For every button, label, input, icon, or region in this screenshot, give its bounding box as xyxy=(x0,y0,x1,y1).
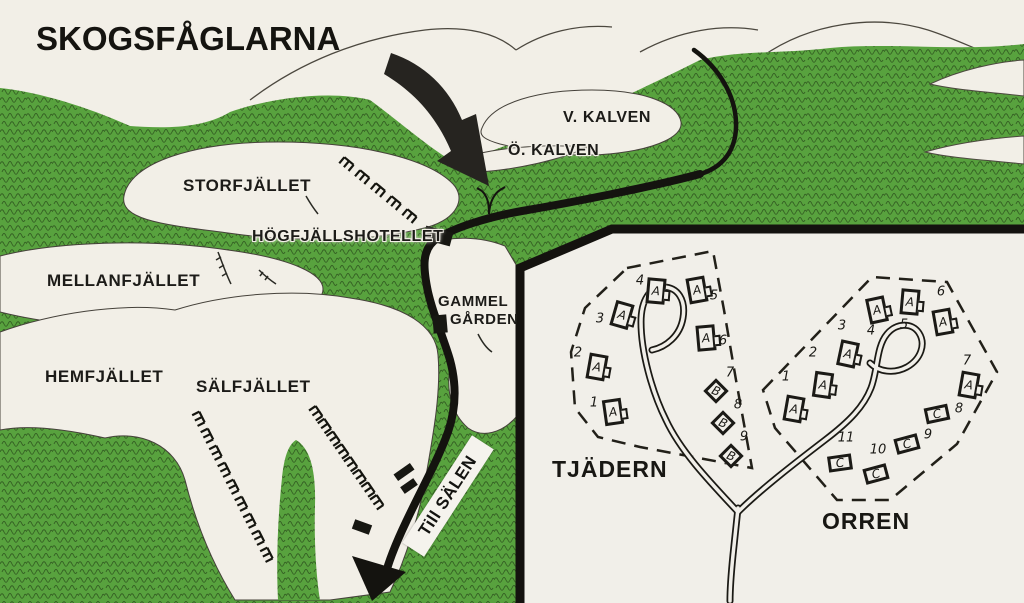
cabin-type-letter: B xyxy=(724,448,737,464)
cabin-number: 8 xyxy=(955,402,963,417)
cabin-number: 9 xyxy=(924,428,932,443)
cabin-type-letter: C xyxy=(870,466,882,482)
cabin-orren-6: A xyxy=(931,308,954,337)
cabin-number: 7 xyxy=(963,354,971,369)
cabin-type-letter: B xyxy=(716,415,729,431)
cabin-number: 3 xyxy=(838,319,846,334)
cabin-type-letter: A xyxy=(872,302,883,317)
cabin-tjädern-8: B xyxy=(710,410,735,435)
cabin-type-letter: A xyxy=(692,282,703,297)
cabin-type-letter: C xyxy=(901,436,913,452)
cabin-orren-9: C xyxy=(893,433,920,455)
cabin-tjädern-7: B xyxy=(703,378,728,403)
cabin-number: 2 xyxy=(809,346,817,361)
cabin-notch xyxy=(918,301,925,312)
cabin-notch xyxy=(801,409,809,421)
cabin-orren-8: C xyxy=(924,404,951,425)
cabin-notch xyxy=(830,384,837,396)
cabin-orren-7: A xyxy=(957,371,980,400)
cabin-notch xyxy=(885,305,893,317)
cabin-number: 10 xyxy=(870,443,887,458)
cabin-type-letter: A xyxy=(608,404,618,419)
cabin-orren-3: A xyxy=(836,339,860,368)
cabin-orren-1: A xyxy=(782,395,805,424)
cabin-notch xyxy=(976,385,984,397)
cabin-type-letter: A xyxy=(843,346,854,361)
cabin-tjädern-9: B xyxy=(718,443,743,468)
cabin-type-letter: A xyxy=(938,314,949,329)
cabin-type-letter: A xyxy=(905,295,914,310)
cabin-orren-10: C xyxy=(862,463,889,485)
cabin-type-letter: A xyxy=(789,401,800,416)
cabin-number: 4 xyxy=(636,274,644,289)
cabin-notch xyxy=(621,408,628,420)
cabin-number: 5 xyxy=(710,289,718,304)
cabin-number: 5 xyxy=(900,318,908,333)
cabin-orren-4: A xyxy=(865,295,889,324)
cabin-type-letter: A xyxy=(651,284,660,299)
cabin-number: 11 xyxy=(838,431,855,446)
cabin-number: 7 xyxy=(726,366,734,381)
cabin-notch xyxy=(951,318,959,330)
cabin-tjädern-2: A xyxy=(585,353,608,382)
cabin-notch xyxy=(604,367,612,379)
cabin-orren-11: C xyxy=(827,453,853,472)
cabin-number: 1 xyxy=(590,396,598,411)
cabin-type-letter: A xyxy=(818,377,828,392)
cabin-number: 6 xyxy=(937,285,945,300)
cabin-notch xyxy=(664,290,671,301)
cabin-notch xyxy=(628,315,637,327)
cabin-tjädern-1: A xyxy=(602,398,624,426)
cabin-type-letter: C xyxy=(931,406,942,421)
cabin-type-letter: C xyxy=(835,455,845,470)
cabin-number: 6 xyxy=(719,334,727,349)
cabin-number: 2 xyxy=(574,346,582,361)
cabin-orren-5: A xyxy=(899,288,920,316)
cabin-number: 8 xyxy=(734,398,742,413)
cabin-tjädern-6: A xyxy=(695,324,716,352)
inset-cabins: A1A2A3A4A5A6B7B8B9A1A2A3A4A5A6A7C8C9C10C… xyxy=(0,0,1024,603)
map-page: SKOGSFÅGLARNA STORFJÄLLET V. KALVEN Ö. K… xyxy=(0,0,1024,603)
cabin-tjädern-5: A xyxy=(685,276,708,305)
cabin-orren-2: A xyxy=(812,371,834,399)
cabin-type-letter: A xyxy=(964,377,975,392)
cabin-number: 1 xyxy=(782,370,790,385)
cabin-tjädern-3: A xyxy=(609,300,634,330)
cabin-tjädern-4: A xyxy=(645,277,666,305)
cabin-number: 3 xyxy=(596,312,604,327)
cabin-number: 9 xyxy=(740,430,748,445)
cabin-type-letter: A xyxy=(701,331,710,346)
cabin-type-letter: A xyxy=(616,307,628,323)
cabin-type-letter: A xyxy=(592,359,603,374)
cabin-notch xyxy=(854,354,862,366)
cabin-number: 4 xyxy=(867,324,875,339)
cabin-type-letter: B xyxy=(709,383,722,399)
